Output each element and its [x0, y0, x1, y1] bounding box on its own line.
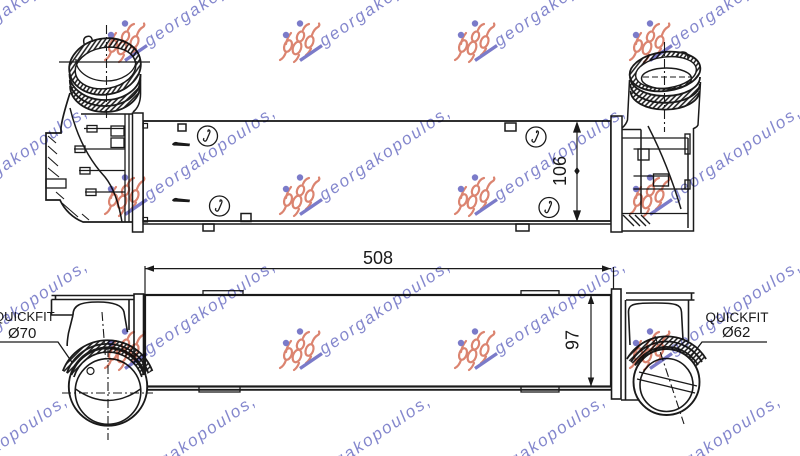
svg-text:97: 97 — [563, 330, 583, 350]
svg-text:Ø70: Ø70 — [8, 325, 36, 342]
svg-text:508: 508 — [363, 248, 393, 268]
svg-text:Ø62: Ø62 — [722, 324, 750, 341]
